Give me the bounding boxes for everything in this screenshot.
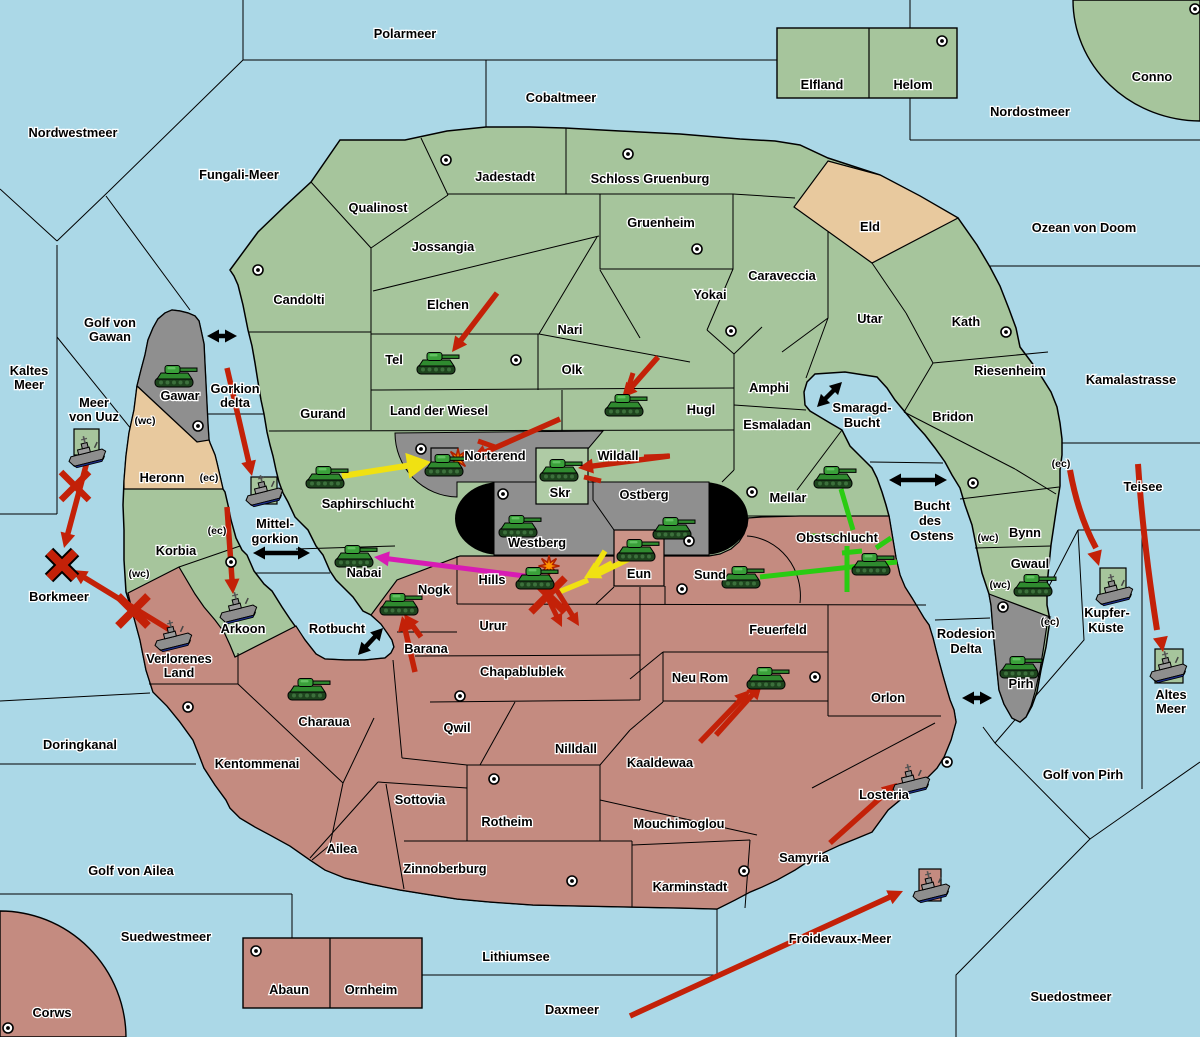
svg-text:Verlorenes: Verlorenes [146, 651, 211, 666]
svg-text:Rotbucht: Rotbucht [309, 621, 366, 636]
svg-text:Golf von: Golf von [84, 315, 136, 330]
svg-text:Hills: Hills [478, 572, 505, 587]
svg-text:Samyria: Samyria [779, 850, 830, 865]
svg-text:Doringkanal: Doringkanal [43, 737, 117, 752]
svg-text:Obstschlucht: Obstschlucht [796, 530, 879, 545]
svg-text:Qwil: Qwil [443, 720, 470, 735]
svg-text:Ostberg: Ostberg [619, 487, 668, 502]
svg-text:Bridon: Bridon [932, 409, 973, 424]
svg-text:Ornheim: Ornheim [345, 982, 398, 997]
svg-text:Norterend: Norterend [464, 448, 525, 463]
svg-text:Olk: Olk [562, 362, 584, 377]
svg-text:Skr: Skr [550, 485, 571, 500]
svg-text:Kentommenai: Kentommenai [215, 756, 300, 771]
svg-text:Abaun: Abaun [269, 982, 309, 997]
svg-text:Gwaul: Gwaul [1011, 556, 1049, 571]
svg-text:Jossangia: Jossangia [412, 239, 475, 254]
svg-text:Tel: Tel [385, 352, 403, 367]
svg-text:Cobaltmeer: Cobaltmeer [526, 90, 596, 105]
svg-text:Esmaladan: Esmaladan [743, 417, 811, 432]
svg-text:Golf von Pirh: Golf von Pirh [1043, 767, 1124, 782]
svg-text:Polarmeer: Polarmeer [374, 26, 437, 41]
svg-text:Gruenheim: Gruenheim [627, 215, 695, 230]
svg-text:Gawar: Gawar [160, 388, 199, 403]
svg-text:Golf von Ailea: Golf von Ailea [88, 863, 174, 878]
svg-text:Kaaldewaa: Kaaldewaa [627, 755, 694, 770]
svg-text:Mouchimoglou: Mouchimoglou [634, 816, 725, 831]
svg-text:Heronn: Heronn [140, 470, 185, 485]
svg-text:Utar: Utar [857, 311, 883, 326]
svg-text:Kamalastrasse: Kamalastrasse [1086, 372, 1176, 387]
svg-text:Land der Wiesel: Land der Wiesel [390, 403, 488, 418]
svg-text:Ozean von Doom: Ozean von Doom [1032, 220, 1137, 235]
svg-text:Meer: Meer [79, 395, 109, 410]
svg-text:Ostens: Ostens [910, 528, 953, 543]
svg-text:Gurand: Gurand [300, 406, 346, 421]
svg-text:Lithiumsee: Lithiumsee [482, 949, 550, 964]
svg-text:Teisee: Teisee [1124, 479, 1163, 494]
svg-text:(ec): (ec) [208, 525, 227, 537]
svg-text:Corws: Corws [32, 1005, 71, 1020]
svg-text:Meer: Meer [1156, 701, 1186, 716]
svg-text:Nari: Nari [558, 322, 583, 337]
svg-text:Pirh: Pirh [1009, 676, 1034, 691]
svg-text:Jadestadt: Jadestadt [475, 169, 535, 184]
svg-text:Borkmeer: Borkmeer [29, 589, 89, 604]
svg-text:(ec): (ec) [200, 472, 219, 484]
svg-text:Amphi: Amphi [749, 380, 789, 395]
svg-text:Küste: Küste [1088, 620, 1124, 635]
svg-text:Elchen: Elchen [427, 297, 469, 312]
svg-text:Chapablublek: Chapablublek [480, 664, 565, 679]
svg-text:Nogk: Nogk [418, 582, 451, 597]
svg-text:(wc): (wc) [978, 532, 999, 544]
svg-text:Altes: Altes [1155, 687, 1186, 702]
svg-text:Urur: Urur [479, 618, 506, 633]
svg-text:Gawan: Gawan [89, 329, 131, 344]
svg-text:Caraveccia: Caraveccia [748, 268, 816, 283]
svg-text:Smaragd-: Smaragd- [832, 400, 891, 415]
svg-text:Zinnoberburg: Zinnoberburg [403, 861, 486, 876]
svg-text:Yokai: Yokai [693, 287, 726, 302]
svg-text:Daxmeer: Daxmeer [545, 1002, 599, 1017]
svg-text:Riesenheim: Riesenheim [974, 363, 1046, 378]
svg-text:Conno: Conno [1132, 69, 1173, 84]
svg-text:Nordostmeer: Nordostmeer [990, 104, 1070, 119]
svg-text:Bucht: Bucht [844, 415, 881, 430]
svg-text:Rodesion: Rodesion [937, 626, 995, 641]
svg-text:Bucht: Bucht [914, 498, 951, 513]
svg-text:Charaua: Charaua [298, 714, 350, 729]
svg-text:Land: Land [164, 665, 195, 680]
svg-text:(wc): (wc) [129, 568, 150, 580]
svg-text:(wc): (wc) [135, 415, 156, 427]
svg-text:des: des [919, 513, 941, 528]
svg-text:Neu Rom: Neu Rom [672, 670, 728, 685]
svg-text:Suedwestmeer: Suedwestmeer [121, 929, 211, 944]
svg-text:Mellar: Mellar [770, 490, 807, 505]
svg-text:delta: delta [220, 395, 251, 410]
svg-text:Kaltes: Kaltes [10, 363, 48, 378]
svg-text:Schloss Gruenburg: Schloss Gruenburg [591, 171, 710, 186]
svg-text:von Uuz: von Uuz [69, 409, 119, 424]
svg-text:Nabai: Nabai [347, 565, 382, 580]
svg-text:Barana: Barana [404, 641, 448, 656]
svg-text:Froidevaux-Meer: Froidevaux-Meer [789, 931, 891, 946]
svg-text:Mittel-: Mittel- [256, 516, 294, 531]
svg-text:Westberg: Westberg [508, 535, 566, 550]
svg-text:Eun: Eun [627, 566, 651, 581]
svg-text:Ailea: Ailea [327, 841, 358, 856]
svg-text:Sund: Sund [694, 567, 726, 582]
svg-text:Candolti: Candolti [273, 292, 324, 307]
svg-text:Fungali-Meer: Fungali-Meer [199, 167, 279, 182]
svg-text:Korbia: Korbia [156, 543, 197, 558]
svg-text:Bynn: Bynn [1009, 525, 1041, 540]
svg-text:Delta: Delta [950, 641, 982, 656]
svg-text:Wildall: Wildall [597, 448, 638, 463]
svg-text:Helom: Helom [893, 77, 932, 92]
svg-text:(ec): (ec) [1041, 616, 1060, 628]
svg-text:Losteria: Losteria [859, 787, 910, 802]
svg-text:Kath: Kath [952, 314, 981, 329]
svg-text:Eld: Eld [860, 219, 880, 234]
svg-text:Feuerfeld: Feuerfeld [749, 622, 807, 637]
svg-text:Meer: Meer [14, 377, 44, 392]
svg-text:Rotheim: Rotheim [481, 814, 532, 829]
svg-text:Kupfer-: Kupfer- [1084, 605, 1130, 620]
svg-text:gorkion: gorkion [252, 531, 299, 546]
svg-text:Qualinost: Qualinost [348, 200, 408, 215]
svg-text:Hugl: Hugl [687, 402, 715, 417]
svg-text:Saphirschlucht: Saphirschlucht [322, 496, 415, 511]
svg-text:Suedostmeer: Suedostmeer [1030, 989, 1111, 1004]
svg-text:Orlon: Orlon [871, 690, 905, 705]
svg-text:Elfland: Elfland [801, 77, 844, 92]
svg-text:(ec): (ec) [1052, 458, 1071, 470]
svg-text:Karminstadt: Karminstadt [653, 879, 728, 894]
svg-text:Gorkion: Gorkion [210, 381, 259, 396]
svg-text:Nordwestmeer: Nordwestmeer [29, 125, 118, 140]
svg-text:Sottovia: Sottovia [395, 792, 446, 807]
svg-text:Nilldall: Nilldall [555, 741, 597, 756]
svg-text:(wc): (wc) [990, 579, 1011, 591]
svg-text:Arkoon: Arkoon [221, 621, 266, 636]
